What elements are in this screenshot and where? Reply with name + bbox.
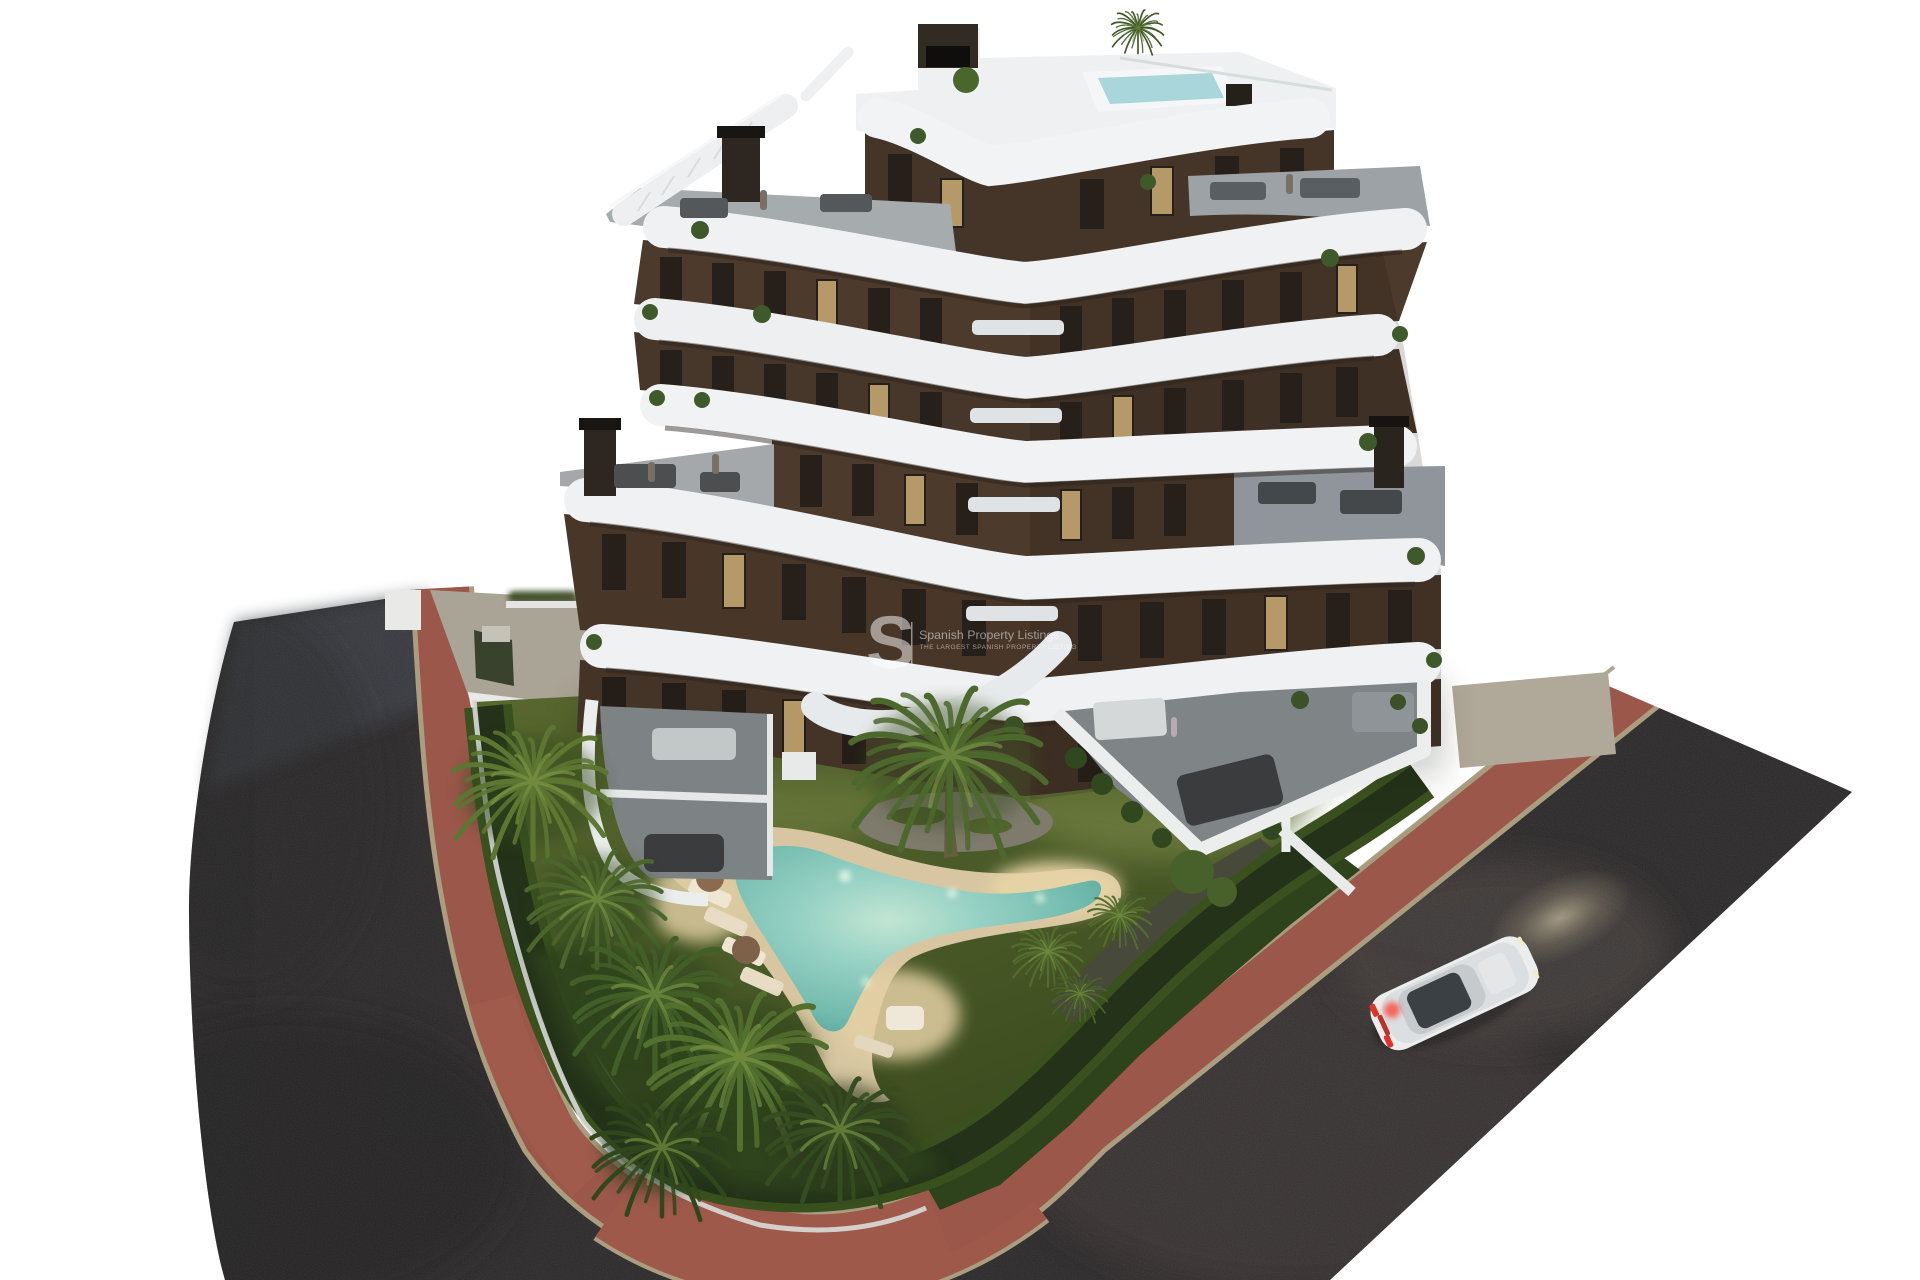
svg-text:S: S — [866, 601, 915, 684]
svg-text:Spanish Property Listings: Spanish Property Listings — [919, 628, 1060, 642]
svg-text:THE LARGEST SPANISH PROPERTY L: THE LARGEST SPANISH PROPERTY LISTING — [920, 644, 1078, 651]
